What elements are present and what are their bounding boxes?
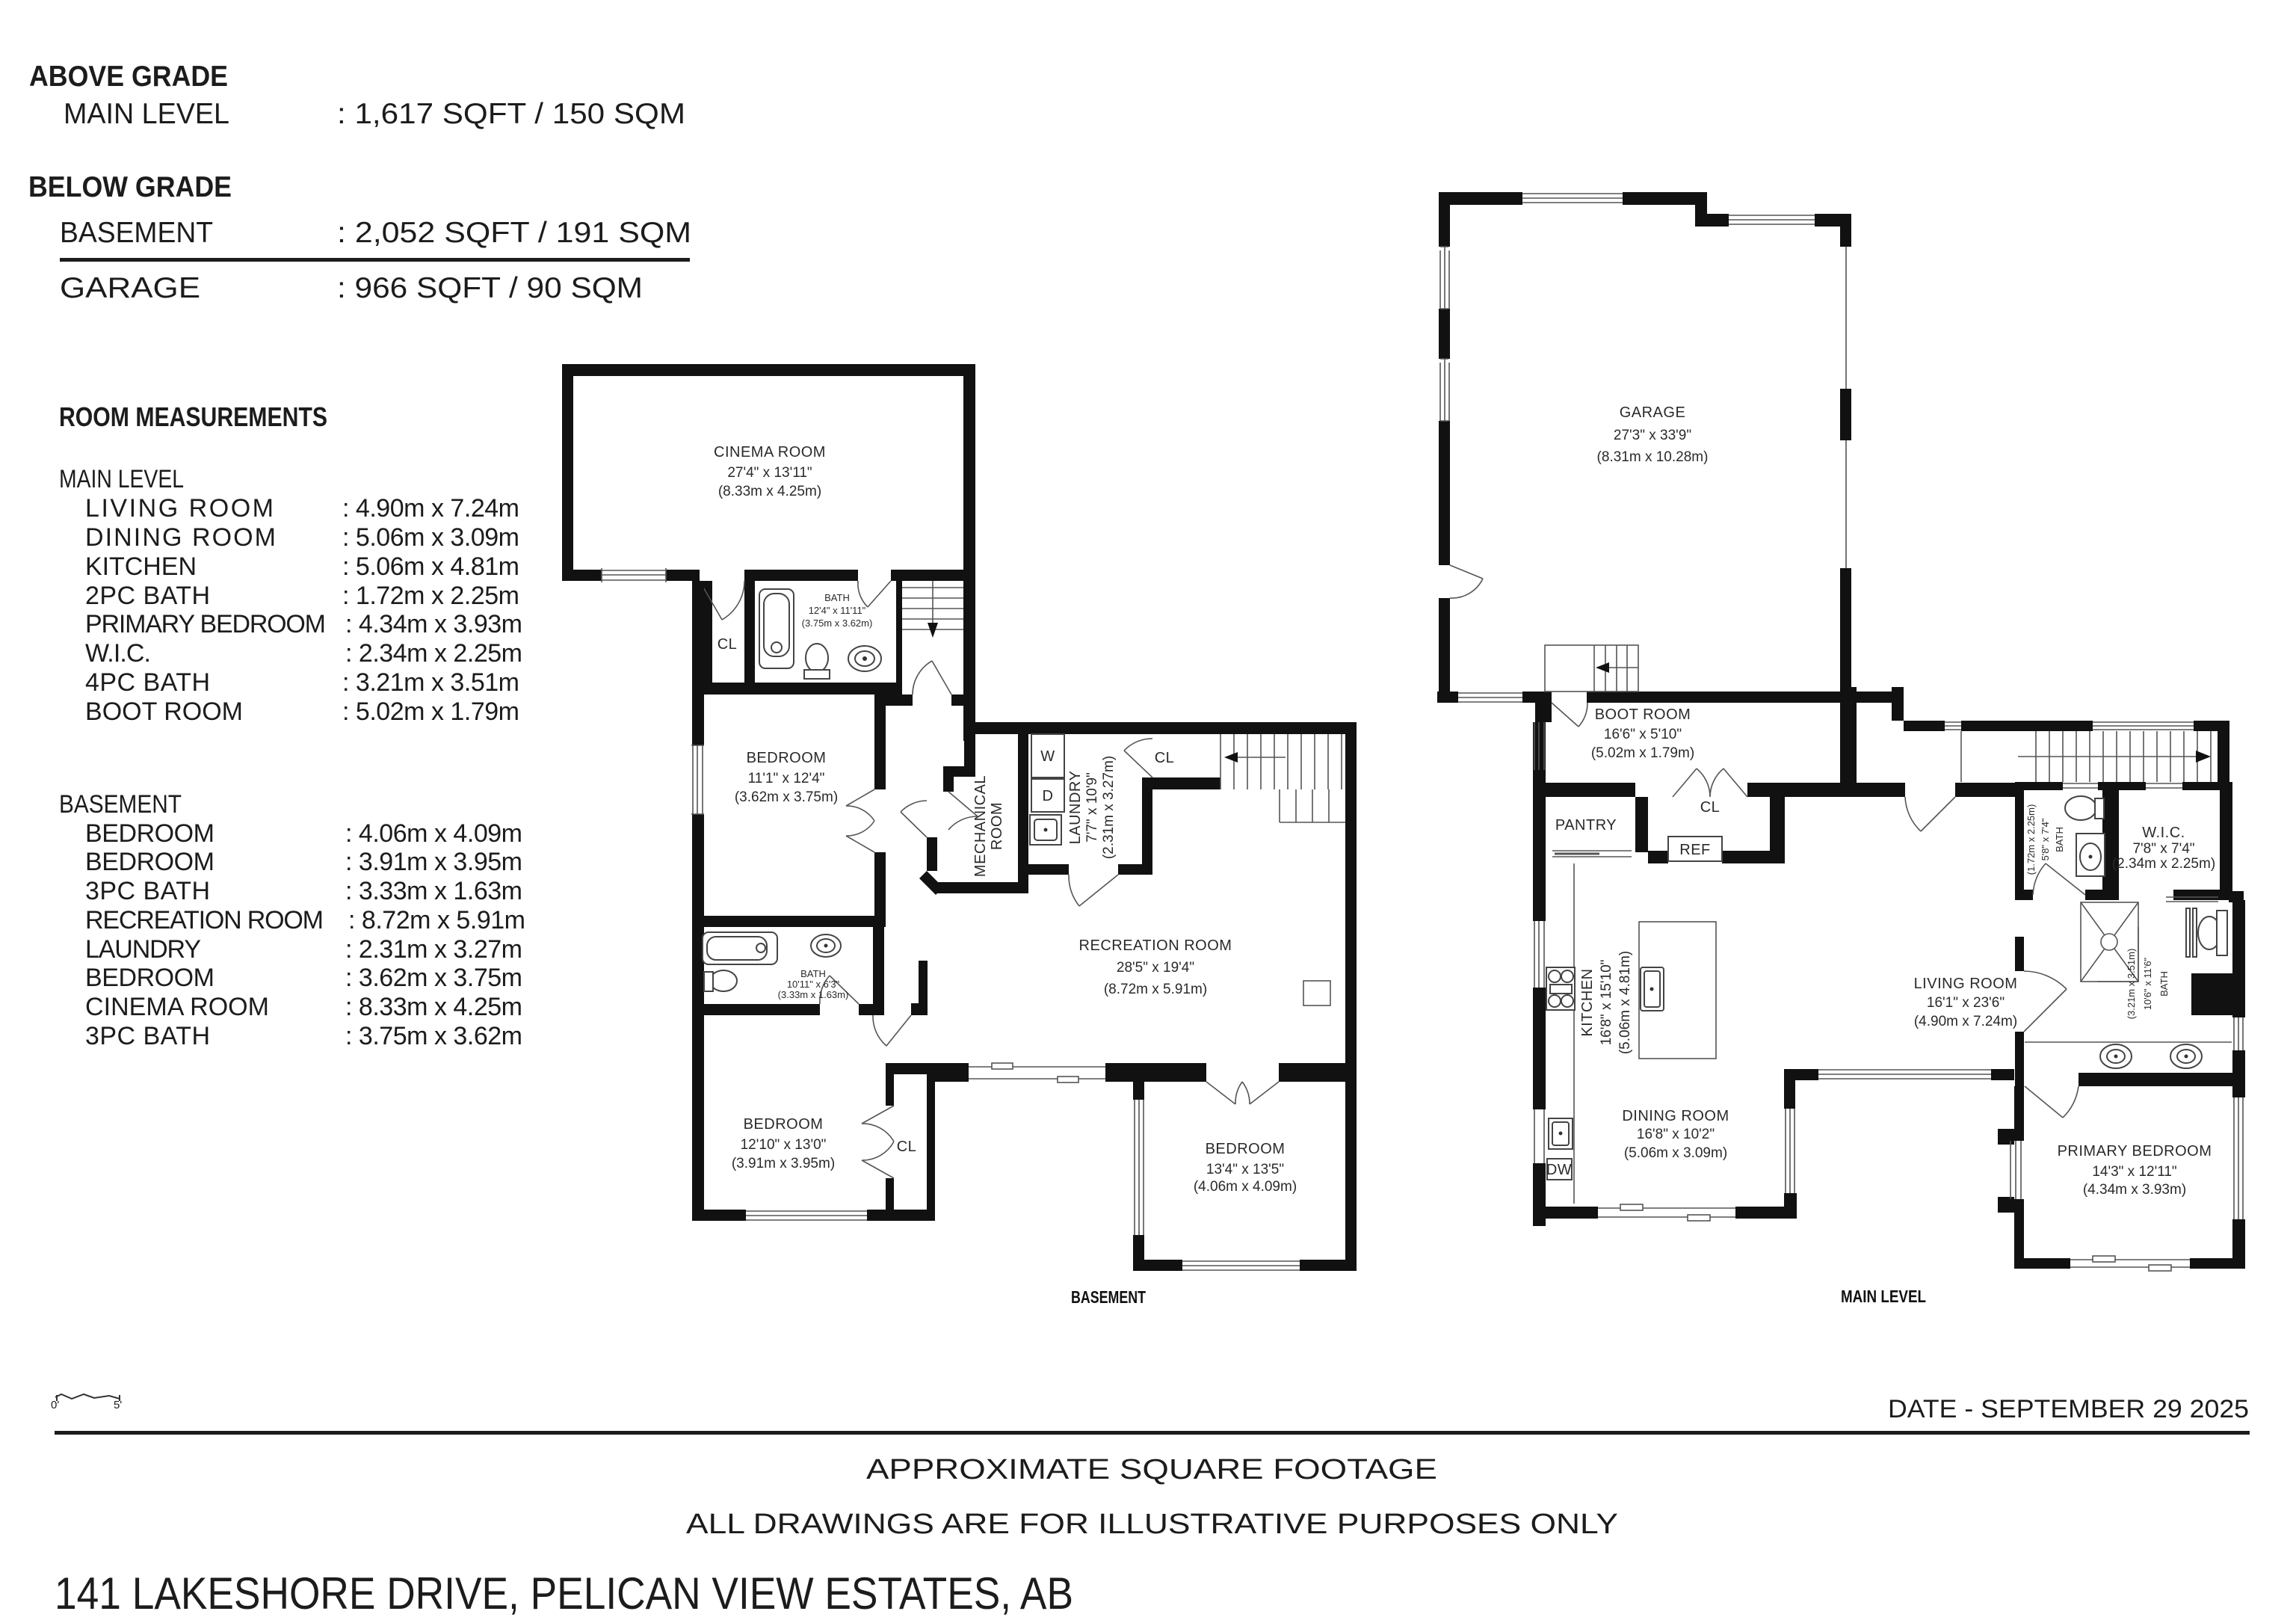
svg-text:: 5.06m x 3.09m: : 5.06m x 3.09m (342, 523, 519, 552)
svg-text:APPROXIMATE SQUARE FOOTAGE: APPROXIMATE SQUARE FOOTAGE (866, 1454, 1437, 1485)
svg-text:BATH: BATH (2054, 827, 2065, 852)
svg-text:PANTRY: PANTRY (1555, 817, 1617, 834)
svg-text:RECREATION ROOM: RECREATION ROOM (85, 906, 324, 934)
svg-text:141 LAKESHORE DRIVE, PELICAN V: 141 LAKESHORE DRIVE, PELICAN VIEW ESTATE… (55, 1568, 1073, 1619)
svg-text:BATH: BATH (824, 592, 850, 603)
svg-text:LIVING ROOM: LIVING ROOM (1914, 976, 2018, 992)
svg-text:DW: DW (1546, 1162, 1572, 1178)
svg-text:(3.91m x 3.95m): (3.91m x 3.95m) (732, 1156, 835, 1171)
svg-text:5': 5' (114, 1399, 122, 1411)
svg-text:: 8.72m x 5.91m: : 8.72m x 5.91m (348, 906, 525, 934)
svg-text:(5.06m x 4.81m): (5.06m x 4.81m) (1617, 951, 1633, 1054)
svg-text:MAIN LEVEL: MAIN LEVEL (59, 465, 184, 493)
svg-text:(3.21m x 3.51m): (3.21m x 3.51m) (2126, 949, 2137, 1020)
svg-text:BASEMENT: BASEMENT (59, 790, 182, 819)
svg-text:(5.06m x 3.09m): (5.06m x 3.09m) (1624, 1145, 1727, 1161)
svg-text:W.I.C.: W.I.C. (85, 639, 151, 668)
svg-text:BATH: BATH (2158, 971, 2170, 997)
svg-text:: 8.33m x 4.25m: : 8.33m x 4.25m (345, 993, 522, 1021)
svg-text:: 2.34m x 2.25m: : 2.34m x 2.25m (345, 639, 522, 668)
svg-text:BEDROOM: BEDROOM (744, 1116, 824, 1133)
svg-text:27'4" x 13'11": 27'4" x 13'11" (727, 465, 812, 481)
svg-text:: 1,617 SQFT / 150 SQM: : 1,617 SQFT / 150 SQM (337, 98, 685, 130)
svg-text:BOOT ROOM: BOOT ROOM (1595, 706, 1691, 723)
svg-text:7'8" x 7'4": 7'8" x 7'4" (2132, 841, 2194, 857)
svg-text:PRIMARY BEDROOM: PRIMARY BEDROOM (85, 610, 326, 638)
svg-text:10'11" x 6'3": 10'11" x 6'3" (787, 979, 840, 990)
svg-text:(4.06m x 4.09m): (4.06m x 4.09m) (1194, 1179, 1297, 1195)
svg-text:(4.90m x 7.24m): (4.90m x 7.24m) (1914, 1014, 2017, 1029)
svg-text:CINEMA ROOM: CINEMA ROOM (714, 444, 826, 461)
svg-text:: 5.02m x 1.79m: : 5.02m x 1.79m (342, 697, 519, 726)
svg-text:DINING ROOM: DINING ROOM (85, 523, 276, 552)
svg-text:PRIMARY BEDROOM: PRIMARY BEDROOM (2058, 1143, 2212, 1159)
svg-text:BATH: BATH (800, 968, 826, 979)
svg-text:LAUNDRY: LAUNDRY (1067, 771, 1084, 845)
svg-text:LIVING ROOM: LIVING ROOM (85, 494, 274, 523)
svg-text:(8.33m x 4.25m): (8.33m x 4.25m) (718, 484, 821, 499)
svg-text:5'8" x 7'4": 5'8" x 7'4" (2040, 818, 2051, 860)
svg-text:: 2.31m x 3.27m: : 2.31m x 3.27m (345, 935, 522, 964)
svg-text:BELOW GRADE: BELOW GRADE (28, 171, 232, 203)
svg-text:2PC BATH: 2PC BATH (85, 582, 210, 610)
svg-text:: 4.34m x 3.93m: : 4.34m x 3.93m (345, 610, 522, 638)
svg-text:: 4.90m x 7.24m: : 4.90m x 7.24m (342, 494, 519, 523)
svg-text:16'1" x 23'6": 16'1" x 23'6" (1927, 995, 2005, 1011)
svg-text:28'5" x 19'4": 28'5" x 19'4" (1117, 960, 1194, 976)
svg-text:(2.31m x 3.27m): (2.31m x 3.27m) (1101, 756, 1117, 859)
svg-text:CL: CL (897, 1139, 917, 1155)
svg-text:KITCHEN: KITCHEN (85, 552, 197, 581)
svg-text:BEDROOM: BEDROOM (85, 848, 215, 876)
svg-text:: 966 SQFT / 90 SQM: : 966 SQFT / 90 SQM (337, 272, 643, 304)
svg-text:DINING ROOM: DINING ROOM (1622, 1108, 1729, 1124)
svg-text:BASEMENT: BASEMENT (60, 217, 213, 249)
svg-text:CL: CL (1700, 799, 1721, 816)
svg-text:: 2,052 SQFT / 191 SQM: : 2,052 SQFT / 191 SQM (337, 217, 691, 249)
svg-text:MAIN LEVEL: MAIN LEVEL (1841, 1287, 1926, 1306)
svg-text:: 5.06m x 4.81m: : 5.06m x 4.81m (342, 552, 519, 581)
svg-text:GARAGE: GARAGE (1620, 404, 1686, 421)
svg-text:7'7" x 10'9": 7'7" x 10'9" (1084, 772, 1100, 843)
svg-text:DATE - SEPTEMBER 29 2025: DATE - SEPTEMBER 29 2025 (1888, 1395, 2249, 1423)
svg-text:ALL DRAWINGS ARE FOR ILLUSTRAT: ALL DRAWINGS ARE FOR ILLUSTRATIVE PURPOS… (686, 1509, 1618, 1540)
svg-text:(1.72m x 2.25m): (1.72m x 2.25m) (2025, 804, 2037, 875)
svg-text:27'3" x 33'9": 27'3" x 33'9" (1614, 428, 1691, 443)
svg-text:3PC BATH: 3PC BATH (85, 877, 210, 905)
svg-text:BEDROOM: BEDROOM (85, 964, 215, 992)
svg-text:CINEMA ROOM: CINEMA ROOM (85, 993, 269, 1021)
svg-text:W.I.C.: W.I.C. (2142, 825, 2185, 841)
svg-text:: 3.33m x 1.63m: : 3.33m x 1.63m (345, 877, 522, 905)
svg-text:MECHANICAL: MECHANICAL (972, 775, 989, 877)
svg-text:: 3.21m x 3.51m: : 3.21m x 3.51m (342, 668, 519, 697)
svg-text:KITCHEN: KITCHEN (1579, 968, 1596, 1036)
svg-text:LAUNDRY: LAUNDRY (85, 935, 201, 964)
svg-text:: 1.72m x 2.25m: : 1.72m x 2.25m (342, 582, 519, 610)
svg-text:(8.31m x 10.28m): (8.31m x 10.28m) (1597, 449, 1709, 465)
svg-text:BEDROOM: BEDROOM (747, 750, 827, 766)
svg-text:BEDROOM: BEDROOM (1206, 1141, 1286, 1157)
svg-text:(4.34m x 3.93m): (4.34m x 3.93m) (2083, 1182, 2186, 1198)
svg-text:REF: REF (1679, 842, 1711, 858)
svg-text:4PC BATH: 4PC BATH (85, 668, 210, 697)
svg-text:13'4" x 13'5": 13'4" x 13'5" (1206, 1162, 1284, 1177)
svg-text:MAIN LEVEL: MAIN LEVEL (64, 98, 229, 130)
svg-text:BASEMENT: BASEMENT (1071, 1287, 1146, 1307)
svg-text:(3.75m x 3.62m): (3.75m x 3.62m) (802, 618, 873, 629)
svg-text:W: W (1040, 748, 1055, 765)
svg-text:16'6" x 5'10": 16'6" x 5'10" (1604, 727, 1682, 742)
svg-text:(8.72m x 5.91m): (8.72m x 5.91m) (1104, 982, 1207, 997)
svg-text:(2.34m x 2.25m): (2.34m x 2.25m) (2112, 856, 2215, 872)
svg-text:: 3.62m x 3.75m: : 3.62m x 3.75m (345, 964, 522, 992)
svg-text:RECREATION ROOM: RECREATION ROOM (1079, 937, 1232, 954)
svg-text:(5.02m x 1.79m): (5.02m x 1.79m) (1591, 745, 1694, 761)
svg-text:D: D (1043, 788, 1054, 804)
svg-text:GARAGE: GARAGE (60, 272, 200, 304)
svg-text:12'10" x 13'0": 12'10" x 13'0" (741, 1137, 827, 1153)
svg-text:0': 0' (51, 1399, 59, 1411)
svg-text:BOOT ROOM: BOOT ROOM (85, 697, 243, 726)
svg-text:CL: CL (717, 636, 738, 653)
svg-text:11'1" x 12'4": 11'1" x 12'4" (748, 771, 825, 786)
svg-text:12'4" x 11'11": 12'4" x 11'11" (809, 605, 866, 616)
svg-text:3PC BATH: 3PC BATH (85, 1022, 210, 1050)
svg-text:: 3.91m x 3.95m: : 3.91m x 3.95m (345, 848, 522, 876)
svg-text:(3.62m x 3.75m): (3.62m x 3.75m) (735, 789, 838, 805)
svg-text:(3.33m x 1.63m): (3.33m x 1.63m) (778, 989, 849, 1000)
svg-text:10'6" x 11'6": 10'6" x 11'6" (2142, 957, 2153, 1010)
svg-text:BEDROOM: BEDROOM (85, 819, 215, 848)
svg-text:ABOVE GRADE: ABOVE GRADE (29, 61, 228, 93)
svg-text:ROOM MEASUREMENTS: ROOM MEASUREMENTS (59, 401, 327, 432)
svg-text:: 3.75m x 3.62m: : 3.75m x 3.62m (345, 1022, 522, 1050)
svg-text:16'8" x 10'2": 16'8" x 10'2" (1637, 1127, 1715, 1142)
svg-text:: 4.06m x 4.09m: : 4.06m x 4.09m (345, 819, 522, 848)
svg-text:16'8" x 15'10": 16'8" x 15'10" (1599, 960, 1614, 1046)
svg-text:ROOM: ROOM (989, 802, 1005, 850)
svg-text:CL: CL (1155, 750, 1175, 766)
svg-text:14'3" x 12'11": 14'3" x 12'11" (2092, 1164, 2176, 1180)
